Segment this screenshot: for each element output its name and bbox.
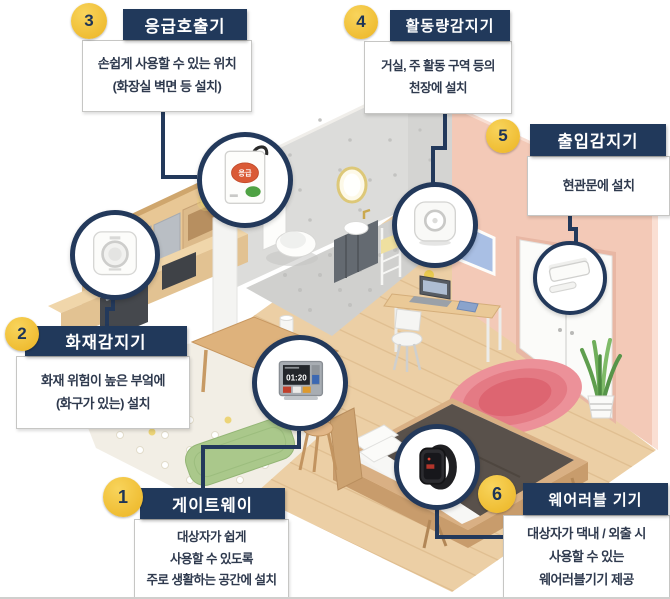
emergency-call-icon: 응급 — [202, 137, 288, 223]
callout-number-badge: 1 — [103, 477, 143, 517]
callout-title-entry-sensor: 출입감지기 — [530, 124, 666, 156]
callout-line: 손쉽게 사용할 수 있는 위치 — [98, 53, 237, 76]
callout-title-wearable: 웨어러블 기기 — [523, 483, 668, 515]
callout-body-wearable: 대상자가 댁내 / 외출 시 사용할 수 있는 웨어러블기기 제공 — [503, 515, 670, 599]
callout-title-emergency-call: 응급호출기 — [123, 9, 247, 40]
callout-number-badge: 6 — [478, 475, 516, 513]
callout-number-badge: 5 — [486, 119, 520, 153]
callout-title-gateway: 게이트웨이 — [140, 488, 285, 519]
smartwatch-icon — [399, 429, 475, 505]
callout-number-badge: 4 — [344, 5, 378, 39]
smart-home-infographic: 응급 — [0, 0, 670, 599]
callout-body-entry-sensor: 현관문에 설치 — [527, 156, 670, 216]
callout-body-emergency-call: 손쉽게 사용할 수 있는 위치 (화장실 벽면 등 설치) — [82, 40, 252, 112]
callout-line: 화재 위험이 높은 부엌에 — [41, 370, 165, 393]
callout-line: 사용할 수 있는 — [549, 546, 624, 569]
emergency-call-device-circle: 응급 — [197, 132, 293, 228]
callout-number-badge: 2 — [5, 317, 39, 351]
activity-sensor-icon — [397, 187, 473, 263]
callout-line: (화구가 있는) 설치 — [56, 393, 150, 416]
callout-line: 사용할 수 있도록 — [170, 549, 253, 571]
fire-detector-icon — [75, 215, 155, 295]
activity-sensor-circle — [392, 182, 478, 268]
callout-line: (화장실 벽면 등 설치) — [113, 76, 222, 99]
callout-line: 대상자가 쉽게 — [177, 527, 246, 549]
entry-sensor-icon — [537, 245, 603, 311]
callout-line: 거실, 주 활동 구역 등의 — [381, 56, 495, 78]
callout-line: 웨어러블기기 제공 — [539, 569, 634, 592]
callout-number-badge: 3 — [71, 3, 107, 39]
callout-body-fire-detector: 화재 위험이 높은 부엌에 (화구가 있는) 설치 — [16, 356, 190, 429]
callout-title-activity-sensor: 활동량감지기 — [390, 10, 510, 41]
callout-title-fire-detector: 화재감지기 — [25, 326, 187, 356]
callout-body-activity-sensor: 거실, 주 활동 구역 등의 천장에 설치 — [364, 41, 512, 114]
gateway-clock-display: 01:20 — [286, 373, 307, 382]
gateway-icon: 01:20 — [257, 340, 343, 426]
callout-line: 천장에 설치 — [409, 78, 467, 100]
callout-line: 대상자가 댁내 / 외출 시 — [527, 523, 646, 546]
gateway-device-circle: 01:20 — [252, 335, 348, 431]
callout-line: 주로 생활하는 공간에 설치 — [147, 570, 277, 592]
callout-body-gateway: 대상자가 쉽게 사용할 수 있도록 주로 생활하는 공간에 설치 — [134, 519, 289, 599]
callout-line: 현관문에 설치 — [563, 175, 635, 198]
fire-detector-circle — [70, 210, 160, 300]
entry-sensor-circle — [533, 241, 607, 315]
emergency-button-label: 응급 — [238, 169, 252, 178]
wearable-device-circle — [394, 424, 480, 510]
